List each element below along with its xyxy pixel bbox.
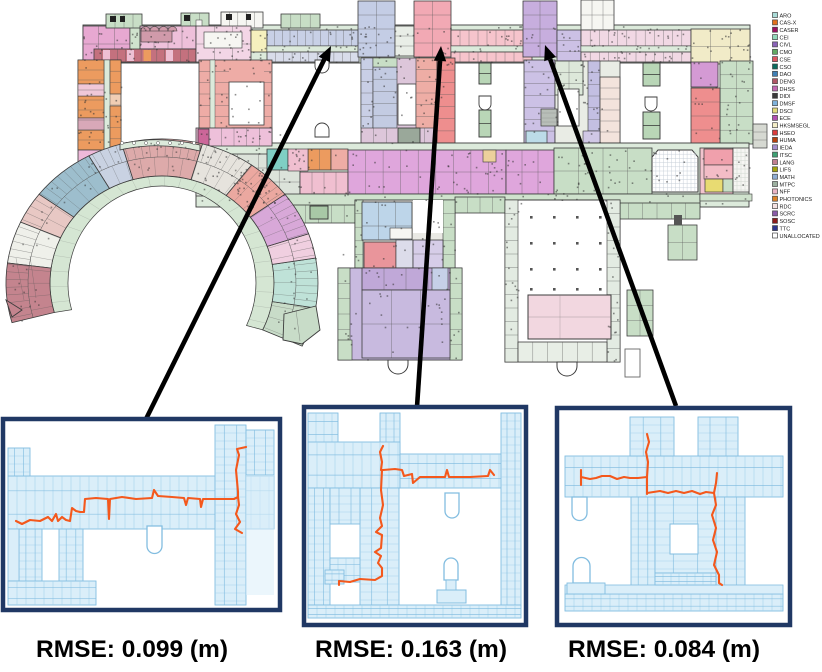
svg-text:MTPC: MTPC <box>780 182 796 188</box>
svg-text:NFF: NFF <box>780 190 791 196</box>
svg-text:CSO: CSO <box>780 65 793 71</box>
svg-text:HUMA: HUMA <box>780 138 797 144</box>
svg-text:HKSMSEGL: HKSMSEGL <box>780 124 811 130</box>
svg-text:DMSF: DMSF <box>780 102 796 108</box>
svg-text:CAS-X: CAS-X <box>780 21 797 27</box>
svg-text:TTC: TTC <box>780 226 791 232</box>
svg-text:MATH: MATH <box>780 175 795 181</box>
svg-text:RDC: RDC <box>780 204 792 210</box>
svg-text:PHOTONICS: PHOTONICS <box>780 197 813 203</box>
svg-text:CASER: CASER <box>780 28 799 34</box>
svg-text:DIDI: DIDI <box>780 94 791 100</box>
svg-text:DENG: DENG <box>780 80 796 86</box>
svg-text:RMSE: 0.099 (m): RMSE: 0.099 (m) <box>36 636 228 663</box>
svg-text:ARO: ARO <box>780 13 793 19</box>
svg-text:CSE: CSE <box>780 57 792 63</box>
svg-text:LANG: LANG <box>780 160 795 166</box>
svg-text:RMSE: 0.163 (m): RMSE: 0.163 (m) <box>315 636 507 663</box>
svg-text:SOSC: SOSC <box>780 219 796 225</box>
svg-text:ITSC: ITSC <box>780 153 793 159</box>
svg-text:CEI: CEI <box>780 35 790 41</box>
svg-text:ECE: ECE <box>780 116 792 122</box>
svg-text:DSCI: DSCI <box>780 109 794 115</box>
svg-text:RMSE: 0.084 (m): RMSE: 0.084 (m) <box>568 636 760 663</box>
svg-text:IEDA: IEDA <box>780 146 793 152</box>
svg-text:CMO: CMO <box>780 50 794 56</box>
svg-text:DAO: DAO <box>780 72 793 78</box>
svg-text:SCRC: SCRC <box>780 212 796 218</box>
svg-text:UNALLOCATED: UNALLOCATED <box>780 234 820 240</box>
svg-text:HSEO: HSEO <box>780 131 796 137</box>
svg-text:LIFS: LIFS <box>780 168 792 174</box>
svg-text:DHSS: DHSS <box>780 87 796 93</box>
svg-text:CIVL: CIVL <box>780 43 792 49</box>
